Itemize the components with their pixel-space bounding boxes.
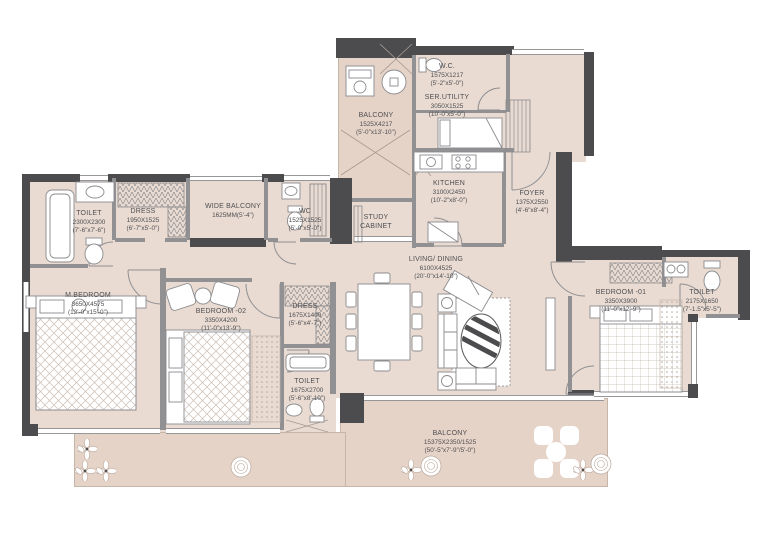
label-foyer: FOYER 1375X2550 (4'-6"x8'-4")	[506, 190, 558, 215]
label-side-balcony: BALCONY 1525X4217 (5'-0"x13'-10")	[344, 112, 408, 137]
utility-basin	[382, 70, 406, 94]
floor-plan-canvas: W.C. 1575X1217 (5'-2"x5'-0") SER.UTILITY…	[0, 0, 770, 540]
label-study-cabinet: STUDY CABINET	[348, 214, 404, 232]
label-wc-top: W.C. 1575X1217 (5'-2"x5'-0")	[415, 63, 479, 88]
label-living-dining: LIVING/ DINING 6100X4525 (20'-0"x14'-10"…	[396, 256, 476, 281]
dining-set	[346, 273, 422, 371]
label-dress-02: DRESS 1675X1400 (5'-6"x4'-7")	[282, 303, 328, 328]
furniture-layer	[0, 0, 770, 540]
label-m-bedroom: M.BEDROOM 3650X4575 (12'-0"x15'-0")	[56, 292, 120, 317]
label-toilet-01: TOILET 2175X1650 (7'-1.5"x5'-5")	[676, 289, 728, 314]
label-toilet-02: TOILET 1675X2700 (5'-6"x8'-10")	[284, 378, 330, 403]
label-toilet-master: TOILET 2300X2300 (7'-6"x7'-6")	[60, 210, 118, 235]
utility-cabinet	[506, 100, 530, 152]
utility-bed	[438, 118, 502, 148]
balcony-tile-motif	[534, 426, 579, 478]
label-dress-master: DRESS 1950X1525 (6'-7"x5'-0")	[114, 208, 172, 233]
label-main-balcony: BALCONY 15375X2350/1525 (50'-5"x7'-9"/5'…	[406, 430, 494, 455]
balcony-flowers	[74, 438, 611, 481]
wardrobe	[118, 183, 184, 207]
label-wc-small: WC 1525X1525 (5'-0"x5'-0")	[276, 208, 334, 233]
bedroom02-chairs	[165, 281, 240, 312]
bedroom02-rug	[252, 336, 280, 422]
label-bedroom-01: BEDROOM -01 3350X3900 (11'-0"x12'-9")	[588, 289, 654, 314]
label-ser-utility: SER.UTILITY 3050X1525 (10'-0"x5'-0")	[416, 94, 478, 119]
bedroom02-bed	[166, 330, 250, 424]
label-kitchen: KITCHEN 3100X2450 (10'-2"x8'-0")	[417, 180, 481, 205]
wardrobe	[610, 263, 672, 283]
washing-machine	[346, 66, 374, 96]
label-wide-balcony: WIDE BALCONY 1625MM(5'-4")	[190, 203, 276, 220]
label-bedroom-02: BEDROOM -02 3350X4200 (11'-0"x13'-9")	[186, 308, 256, 333]
